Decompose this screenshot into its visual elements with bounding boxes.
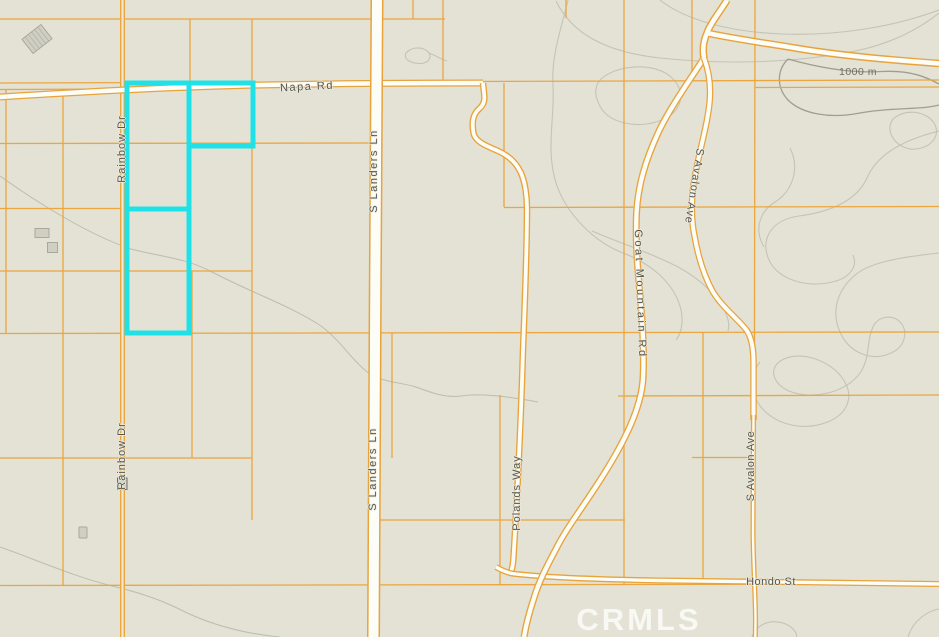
highlighted-parcel[interactable] <box>189 83 253 146</box>
parcel-grid <box>0 0 939 637</box>
road-label-s-landers-ln-upper: S Landers Ln <box>368 129 380 212</box>
hatched-building-icon <box>22 25 52 54</box>
road-label-hondo-st: Hondo St <box>746 576 796 588</box>
roads <box>0 0 939 637</box>
road-label-s-avalon-ave-lower: S Avalon Ave <box>745 431 757 501</box>
building-icon <box>35 229 49 238</box>
hondo-st-road <box>496 567 939 584</box>
map-graphics <box>0 0 939 637</box>
road-label-rainbow-dr-upper: Rainbow Dr <box>116 115 128 182</box>
highlighted-parcel[interactable] <box>127 83 189 209</box>
road-label-s-landers-ln-lower: S Landers Ln <box>367 427 379 510</box>
highlighted-parcel-boundary[interactable] <box>127 83 253 333</box>
crmls-watermark: CRMLS <box>576 602 701 637</box>
building-icon <box>79 527 87 538</box>
map-canvas[interactable]: Napa Rd S Landers Ln S Landers Ln Rainbo… <box>0 0 939 637</box>
s-avalon-ave-road <box>692 58 756 637</box>
road-label-polands-way: Polands Way <box>511 455 523 530</box>
building-icon <box>48 243 58 253</box>
s-landers-ln-road <box>374 0 378 637</box>
road-label-rainbow-dr-lower: Rainbow Dr <box>116 422 128 489</box>
contour-elevation-label: 1000 m <box>839 66 877 78</box>
top-junction-road <box>703 0 939 64</box>
wash-lines <box>0 176 538 637</box>
building-icons <box>22 25 127 538</box>
